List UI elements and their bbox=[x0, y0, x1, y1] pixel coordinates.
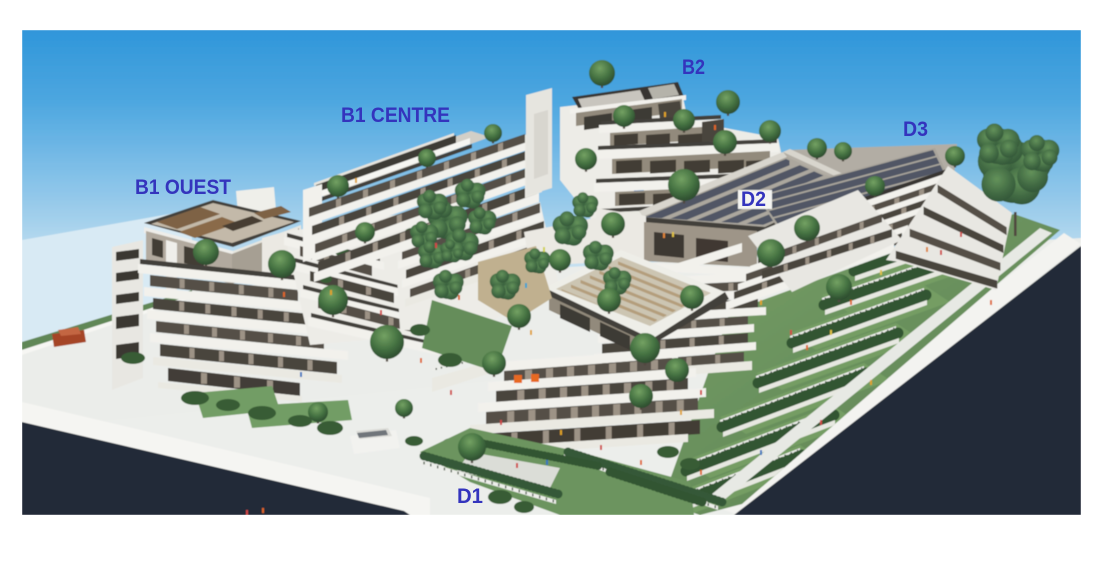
svg-text:B2: B2 bbox=[682, 56, 705, 79]
svg-text:B1 CENTRE: B1 CENTRE bbox=[341, 104, 450, 127]
svg-text:B1 OUEST: B1 OUEST bbox=[135, 176, 231, 199]
svg-text:D1: D1 bbox=[457, 485, 483, 508]
svg-text:D2: D2 bbox=[741, 188, 766, 211]
svg-text:D3: D3 bbox=[903, 118, 928, 141]
